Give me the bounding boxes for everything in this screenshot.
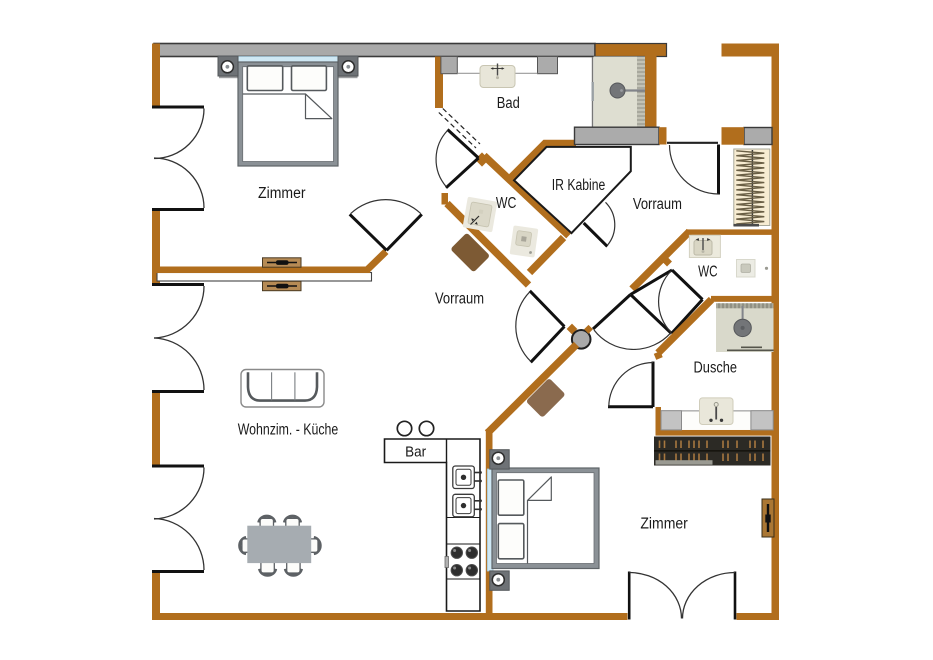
svg-text:Wohnzim. - Küche: Wohnzim. - Küche	[238, 421, 339, 438]
svg-text:Bad: Bad	[497, 95, 520, 112]
svg-text:Dusche: Dusche	[694, 360, 738, 377]
svg-text:WC: WC	[496, 195, 517, 212]
svg-text:Zimmer: Zimmer	[640, 516, 688, 533]
svg-text:Bar: Bar	[405, 444, 426, 460]
svg-text:Vorraum: Vorraum	[435, 290, 484, 307]
svg-text:Zimmer: Zimmer	[258, 185, 306, 202]
svg-text:Vorraum: Vorraum	[633, 196, 682, 213]
svg-text:WC: WC	[698, 264, 718, 281]
svg-text:IR Kabine: IR Kabine	[552, 177, 606, 194]
